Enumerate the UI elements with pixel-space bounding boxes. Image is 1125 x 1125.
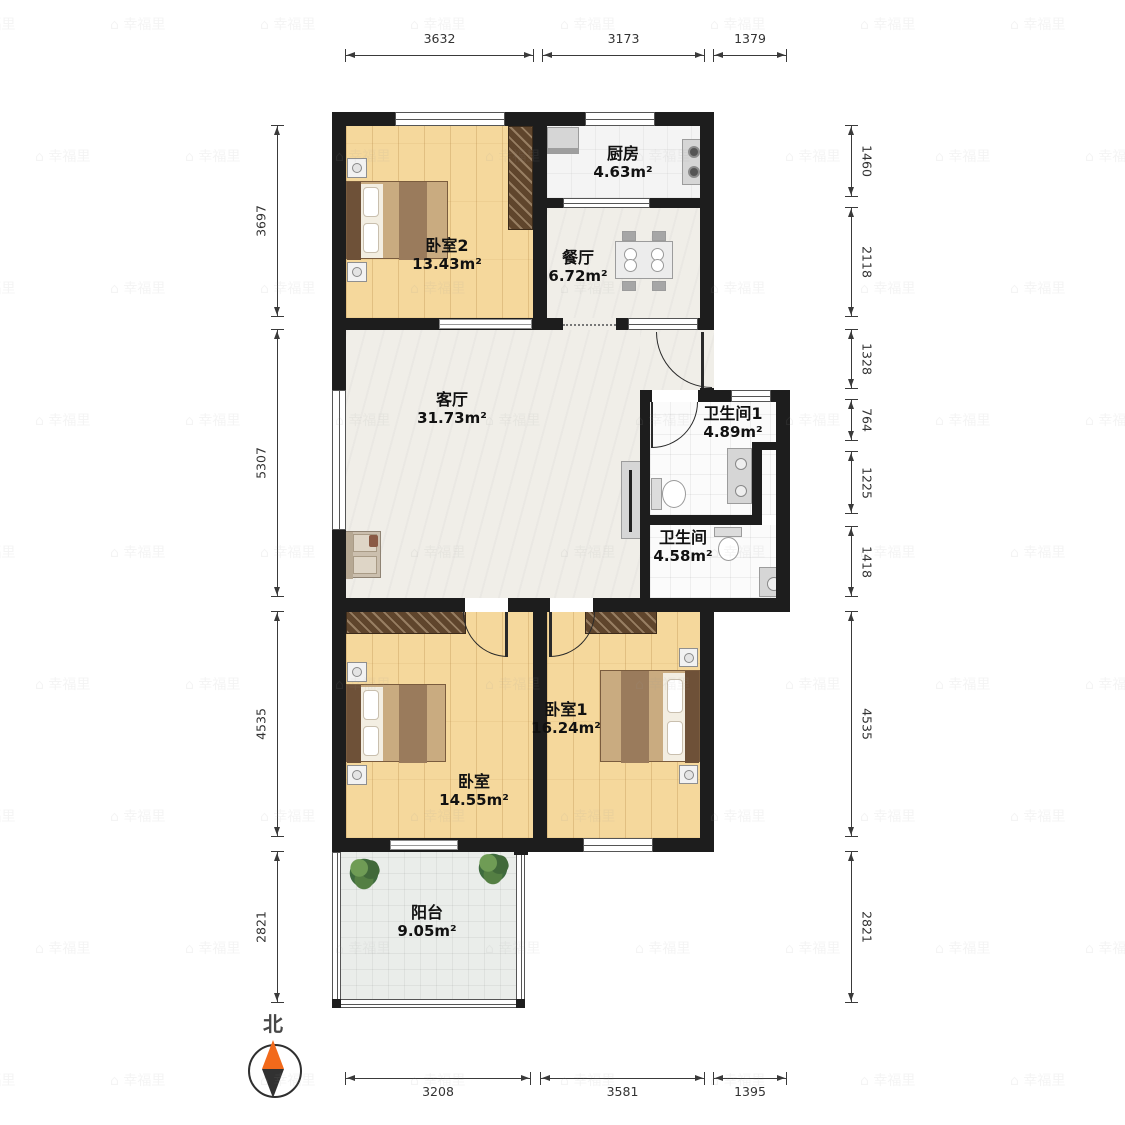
wall	[332, 112, 714, 126]
room-label-bathroom1: 卫生间14.89m²	[703, 404, 762, 442]
room-label-bedroom2: 卧室213.43m²	[412, 236, 482, 274]
watermark-logo: ⌂ 幸福里	[785, 938, 840, 958]
watermark-logo: ⌂ 幸福里	[485, 146, 540, 166]
watermark-logo: ⌂ 幸福里	[185, 410, 240, 430]
compass-north-arrow	[262, 1040, 284, 1069]
nightstand	[347, 262, 367, 282]
watermark-logo: ⌂ 幸福里	[1085, 146, 1125, 166]
room-label-dining: 餐厅6.72m²	[548, 248, 607, 286]
double-sink-vanity	[727, 448, 752, 504]
watermark-logo: ⌂ 幸福里	[110, 542, 165, 562]
watermark-logo: ⌂ 幸福里	[1085, 410, 1125, 430]
watermark-logo: ⌂ 幸福里	[35, 146, 90, 166]
watermark-logo: ⌂ 幸福里	[335, 674, 390, 694]
watermark-logo: ⌂ 幸福里	[560, 542, 615, 562]
watermark-logo: ⌂ 幸福里	[110, 1070, 165, 1090]
watermark-logo: ⌂ 幸福里	[0, 542, 15, 562]
watermark-logo: ⌂ 幸福里	[410, 278, 465, 298]
watermark-logo: ⌂ 幸福里	[1010, 542, 1065, 562]
plant	[477, 851, 509, 885]
dim-top-2: 3173	[543, 48, 704, 62]
balcony-window	[332, 999, 525, 1008]
watermark-logo: ⌂ 幸福里	[710, 542, 765, 562]
dim-right-2: 2118	[844, 208, 858, 316]
watermark-logo: ⌂ 幸福里	[0, 806, 15, 826]
sliding-door	[439, 319, 532, 329]
watermark-logo: ⌂ 幸福里	[935, 146, 990, 166]
watermark-logo: ⌂ 幸福里	[935, 674, 990, 694]
dim-right-5: 1225	[844, 452, 858, 513]
door-opening	[550, 598, 593, 612]
watermark-logo: ⌂ 幸福里	[1010, 278, 1065, 298]
watermark-logo: ⌂ 幸福里	[710, 806, 765, 826]
plant	[348, 856, 380, 890]
watermark-logo: ⌂ 幸福里	[35, 938, 90, 958]
tv-stand	[621, 461, 642, 539]
watermark-logo: ⌂ 幸福里	[1010, 14, 1065, 34]
watermark-logo: ⌂ 幸福里	[410, 1070, 465, 1090]
watermark-logo: ⌂ 幸福里	[635, 674, 690, 694]
dim-right-7: 4535	[844, 612, 858, 836]
toilet-tank	[714, 527, 742, 537]
watermark-logo: ⌂ 幸福里	[935, 410, 990, 430]
dining-chair	[622, 231, 636, 241]
watermark-logo: ⌂ 幸福里	[0, 14, 15, 34]
watermark-logo: ⌂ 幸福里	[785, 146, 840, 166]
dining-chair	[622, 281, 636, 291]
watermark-logo: ⌂ 幸福里	[335, 938, 390, 958]
watermark-logo: ⌂ 幸福里	[335, 410, 390, 430]
watermark-logo: ⌂ 幸福里	[635, 938, 690, 958]
room-label-bedroom: 卧室14.55m²	[439, 772, 509, 810]
watermark-logo: ⌂ 幸福里	[710, 278, 765, 298]
toilet	[662, 480, 686, 508]
watermark-logo: ⌂ 幸福里	[260, 542, 315, 562]
watermark-logo: ⌂ 幸福里	[485, 938, 540, 958]
watermark-logo: ⌂ 幸福里	[410, 542, 465, 562]
armchair-sofa	[344, 531, 381, 578]
watermark-logo: ⌂ 幸福里	[260, 278, 315, 298]
watermark-logo: ⌂ 幸福里	[260, 14, 315, 34]
watermark-logo: ⌂ 幸福里	[410, 14, 465, 34]
door-opening	[652, 390, 698, 402]
wall	[650, 515, 762, 525]
watermark-logo: ⌂ 幸福里	[1010, 806, 1065, 826]
wall	[332, 999, 341, 1008]
wall	[514, 843, 528, 855]
pass-through-window	[563, 198, 650, 208]
watermark-logo: ⌂ 幸福里	[185, 146, 240, 166]
watermark-logo: ⌂ 幸福里	[110, 806, 165, 826]
wall	[533, 112, 547, 318]
watermark-logo: ⌂ 幸福里	[0, 1070, 15, 1090]
window	[731, 390, 771, 402]
watermark-logo: ⌂ 幸福里	[785, 674, 840, 694]
window	[585, 112, 655, 126]
watermark-logo: ⌂ 幸福里	[185, 674, 240, 694]
watermark-logo: ⌂ 幸福里	[860, 278, 915, 298]
watermark-logo: ⌂ 幸福里	[110, 278, 165, 298]
dim-top-3: 1379	[714, 48, 786, 62]
watermark-logo: ⌂ 幸福里	[35, 674, 90, 694]
open-passage	[563, 318, 616, 330]
double-bed	[346, 684, 446, 762]
watermark-logo: ⌂ 幸福里	[0, 278, 15, 298]
watermark-logo: ⌂ 幸福里	[710, 14, 765, 34]
dining-chair	[652, 281, 666, 291]
room-label-living: 客厅31.73m²	[417, 390, 487, 428]
balcony-window	[516, 852, 525, 1004]
watermark-logo: ⌂ 幸福里	[860, 14, 915, 34]
door-opening	[465, 598, 508, 612]
room-label-bathroom: 卫生间4.58m²	[653, 528, 712, 566]
watermark-logo: ⌂ 幸福里	[635, 410, 690, 430]
wardrobe	[508, 126, 533, 230]
watermark-logo: ⌂ 幸福里	[1085, 938, 1125, 958]
watermark-logo: ⌂ 幸福里	[785, 410, 840, 430]
dim-right-8: 2821	[844, 852, 858, 1002]
watermark-logo: ⌂ 幸福里	[260, 806, 315, 826]
watermark-logo: ⌂ 幸福里	[260, 1070, 315, 1090]
window	[395, 112, 505, 126]
watermark-logo: ⌂ 幸福里	[1085, 674, 1125, 694]
toilet-tank	[651, 478, 662, 510]
room-label-balcony: 阳台9.05m²	[397, 903, 456, 941]
wall	[752, 442, 762, 525]
dining-table	[615, 241, 673, 279]
watermark-logo: ⌂ 幸福里	[1010, 1070, 1065, 1090]
dim-right-3: 1328	[844, 330, 858, 388]
watermark-logo: ⌂ 幸福里	[860, 1070, 915, 1090]
watermark-logo: ⌂ 幸福里	[485, 674, 540, 694]
wall	[516, 999, 525, 1008]
wall	[752, 442, 790, 450]
watermark-logo: ⌂ 幸福里	[335, 146, 390, 166]
dining-chair	[652, 231, 666, 241]
watermark-logo: ⌂ 幸福里	[560, 1070, 615, 1090]
kitchen-counter	[547, 127, 579, 154]
nightstand	[347, 765, 367, 785]
watermark-logo: ⌂ 幸福里	[560, 14, 615, 34]
nightstand	[679, 648, 698, 667]
dim-right-4: 764	[844, 400, 858, 440]
window	[583, 838, 653, 852]
north-label: 北	[263, 1008, 283, 1037]
dim-right-6: 1418	[844, 527, 858, 596]
watermark-logo: ⌂ 幸福里	[560, 806, 615, 826]
watermark-logo: ⌂ 幸福里	[485, 410, 540, 430]
watermark-logo: ⌂ 幸福里	[185, 938, 240, 958]
dim-left-3: 4535	[270, 612, 284, 836]
wardrobe	[585, 610, 657, 634]
watermark-logo: ⌂ 幸福里	[860, 806, 915, 826]
watermark-logo: ⌂ 幸福里	[110, 14, 165, 34]
room-label-bedroom1: 卧室116.24m²	[531, 700, 601, 738]
dim-left-4: 2821	[270, 852, 284, 1002]
dim-top-1: 3632	[346, 48, 533, 62]
watermark-logo: ⌂ 幸福里	[710, 1070, 765, 1090]
nightstand	[679, 765, 698, 784]
balcony-window	[332, 852, 341, 1004]
window	[628, 318, 698, 330]
watermark-logo: ⌂ 幸福里	[860, 542, 915, 562]
watermark-logo: ⌂ 幸福里	[35, 410, 90, 430]
sliding-door	[390, 840, 458, 850]
room-label-kitchen: 厨房4.63m²	[593, 144, 652, 182]
watermark-logo: ⌂ 幸福里	[935, 938, 990, 958]
dim-right-1: 1460	[844, 126, 858, 196]
floorplan-canvas: ⌂ 幸福里⌂ 幸福里⌂ 幸福里⌂ 幸福里⌂ 幸福里⌂ 幸福里⌂ 幸福里⌂ 幸福里…	[0, 0, 1125, 1125]
